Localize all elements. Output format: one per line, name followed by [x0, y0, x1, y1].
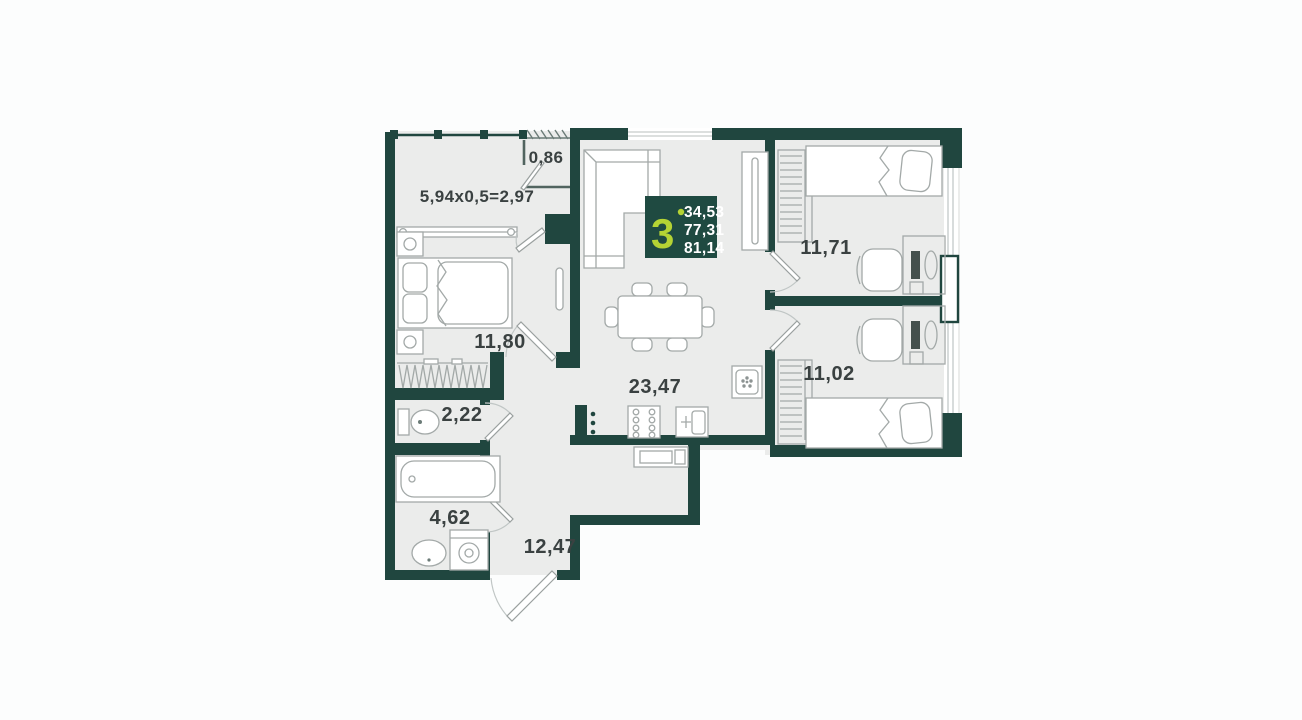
toilet-tank — [398, 409, 409, 435]
room-label-wc: 2,22 — [442, 404, 483, 426]
hook-dot — [591, 421, 596, 426]
room-label-living-kitchen: 23,47 — [629, 376, 682, 398]
toilet-bowl — [411, 410, 439, 434]
room-label-bathroom: 4,62 — [430, 507, 471, 529]
single-bed — [806, 146, 942, 196]
window-bedroom3 — [944, 322, 958, 413]
single-bed — [806, 398, 942, 448]
room-label-balcony: 5,94x0,5=2,97 — [420, 187, 534, 206]
wall-balcony-block — [545, 214, 575, 244]
monitor — [911, 251, 920, 279]
dining-chair — [667, 338, 687, 351]
wall-living-left — [570, 128, 580, 368]
floor-plan: 3 34,53 77,31 81,14 5,94x0,5=2,97 0,86 1… — [0, 0, 1302, 720]
hook-dot — [591, 430, 596, 435]
dining-chair — [632, 338, 652, 351]
cabinet — [742, 152, 768, 250]
badge-area-living: 34,53 — [684, 204, 724, 221]
monitor — [911, 321, 920, 349]
room-label-storage: 0,86 — [529, 148, 564, 167]
nightstand — [397, 232, 423, 256]
badge-area-total: 81,14 — [684, 240, 724, 257]
bathtub — [396, 456, 500, 502]
dining-chair — [605, 307, 618, 327]
glazing-post — [390, 130, 398, 139]
dining-table — [618, 296, 702, 338]
wall-hall-right — [688, 445, 700, 525]
wall-hall-step — [570, 515, 700, 525]
wall-kitchen — [570, 435, 770, 445]
window-end-cap — [508, 229, 515, 236]
badge-rooms-count: 3 — [651, 210, 674, 257]
nightstand — [397, 330, 423, 354]
glazing-post — [519, 130, 527, 139]
badge-area-apartment: 77,31 — [684, 222, 724, 239]
double-bed — [398, 258, 512, 328]
toilet-drain — [418, 420, 422, 424]
wall-left — [385, 132, 395, 580]
hook-dot — [591, 412, 596, 417]
room-label-bedroom2: 11,71 — [800, 237, 851, 259]
floor-plan-canvas: 3 34,53 77,31 81,14 5,94x0,5=2,97 0,86 1… — [0, 0, 1302, 720]
wall-bedroom-step — [490, 352, 504, 400]
entrance-door — [507, 571, 557, 621]
bathroom-sink — [412, 540, 446, 566]
window-pillar — [941, 256, 958, 322]
washing-machine — [450, 530, 488, 570]
dining-chair — [667, 283, 687, 296]
wall-right-top-corner — [940, 128, 962, 168]
wall-bedroom-bottom — [385, 388, 490, 400]
room-label-bedroom: 11,80 — [474, 331, 525, 353]
sink-drain — [427, 558, 430, 561]
wall-mirror — [556, 268, 563, 310]
dining-chair — [701, 307, 714, 327]
wall-bedroom-corner — [556, 352, 580, 368]
wall-wc-bath-divider — [385, 443, 490, 455]
window-bedroom2 — [944, 168, 958, 258]
area-badge: 3 34,53 77,31 81,14 — [645, 196, 724, 258]
dining-chair — [632, 283, 652, 296]
wall-living-rooms — [765, 350, 775, 445]
living-window — [628, 128, 712, 140]
wall-bottom — [557, 570, 580, 580]
rack-bracket — [452, 359, 462, 364]
room-label-hallway: 12,47 — [524, 536, 577, 558]
wall-bottom — [385, 570, 490, 580]
room-label-bedroom3: 11,02 — [803, 363, 854, 385]
wall-top — [712, 128, 962, 140]
glazing-post — [480, 130, 488, 139]
rack-bracket — [424, 359, 438, 364]
wall-bedrooms-divider — [765, 296, 942, 306]
desk-chair — [862, 249, 902, 291]
desk-chair — [862, 319, 902, 361]
glazing-post — [434, 130, 442, 139]
